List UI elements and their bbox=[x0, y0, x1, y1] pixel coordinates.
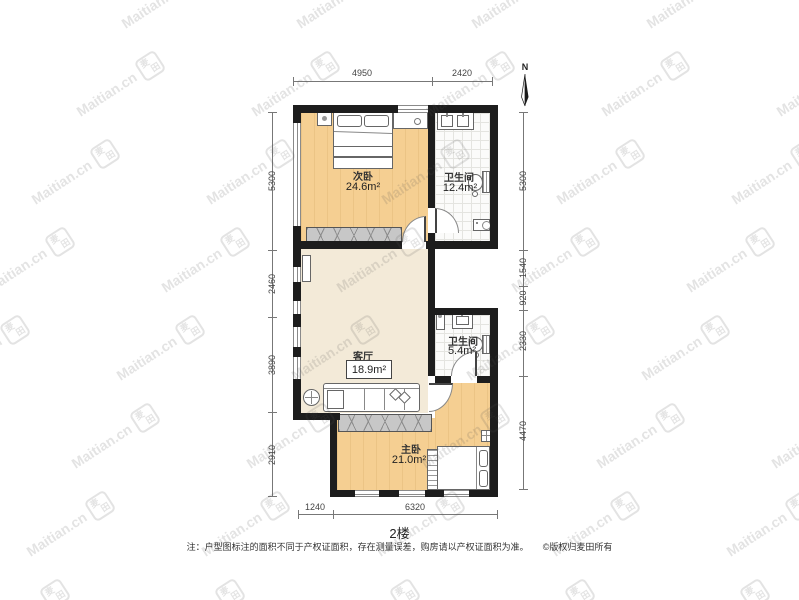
watermark: Maitian.cn麦田 bbox=[501, 577, 597, 600]
watermark: Maitian.cn麦田 bbox=[26, 137, 122, 211]
watermark: Maitian.cn麦田 bbox=[466, 0, 562, 35]
watermark: Maitian.cn麦田 bbox=[0, 577, 72, 600]
watermark: Maitian.cn麦田 bbox=[0, 0, 37, 35]
dim-label: 2460 bbox=[267, 254, 277, 314]
window bbox=[293, 301, 301, 314]
dim-line-top bbox=[293, 81, 493, 82]
room-area-master: 21.0m² bbox=[379, 454, 439, 466]
dim-tick bbox=[519, 376, 528, 377]
disclaimer-text: 注：户型图标注的面积不同于产权证面积，存在测量误差，购房请以产权证面积为准。 bbox=[187, 542, 529, 552]
dim-label: 2330 bbox=[518, 311, 528, 371]
plant-dot bbox=[322, 116, 327, 121]
watermark: Maitian.cn麦田 bbox=[681, 225, 777, 299]
table-cross-v bbox=[311, 391, 312, 404]
wall bbox=[426, 241, 428, 249]
room-area-bath-small: 5.4m² bbox=[432, 345, 492, 357]
window bbox=[293, 123, 301, 226]
dim-label: 2420 bbox=[432, 68, 492, 78]
watermark: Maitian.cn麦田 bbox=[291, 0, 387, 35]
dresser-icon bbox=[393, 111, 428, 129]
dim-label: 6320 bbox=[385, 502, 445, 512]
watermark: Maitian.cn麦田 bbox=[676, 577, 772, 600]
wall bbox=[301, 241, 402, 249]
washer-dot bbox=[476, 222, 478, 224]
dresser-knob bbox=[414, 118, 421, 125]
wall bbox=[293, 314, 301, 327]
north-label: N bbox=[517, 62, 533, 72]
window bbox=[398, 105, 428, 113]
watermark: Maitian.cn麦田 bbox=[551, 137, 647, 211]
wall bbox=[490, 105, 498, 249]
sink-inner bbox=[456, 316, 469, 325]
dim-line-bottom bbox=[298, 514, 497, 515]
wall bbox=[293, 347, 301, 357]
dim-label: 1240 bbox=[285, 502, 345, 512]
dim-tick bbox=[268, 250, 277, 251]
watermark: Maitian.cn麦田 bbox=[641, 0, 737, 35]
wall bbox=[293, 282, 301, 301]
room-area-bath-main: 12.4m² bbox=[430, 182, 490, 194]
bed-pillow bbox=[364, 115, 389, 127]
dim-label: 5300 bbox=[267, 151, 277, 211]
dim-tick bbox=[492, 77, 493, 86]
watermark: Maitian.cn麦田 bbox=[591, 401, 687, 475]
sofa-divider bbox=[364, 389, 365, 410]
watermark: Maitian.cn麦田 bbox=[156, 225, 252, 299]
dim-label: 2910 bbox=[267, 425, 277, 485]
bed-blanket bbox=[333, 146, 393, 157]
dim-tick bbox=[268, 317, 277, 318]
room-area-living-box: 18.9m² bbox=[346, 360, 392, 379]
watermark: Maitian.cn麦田 bbox=[111, 313, 207, 387]
sofa-divider bbox=[384, 389, 385, 410]
watermark: Maitian.cn麦田 bbox=[771, 49, 799, 123]
dim-tick bbox=[519, 489, 528, 490]
north-arrow-icon bbox=[518, 73, 532, 109]
watermark: Maitian.cn麦田 bbox=[151, 577, 247, 600]
dim-label: 4470 bbox=[518, 401, 528, 461]
dim-tick bbox=[293, 77, 294, 86]
dim-tick bbox=[268, 496, 277, 497]
watermark: Maitian.cn麦田 bbox=[326, 577, 422, 600]
bed-pillow bbox=[479, 450, 488, 467]
watermark: Maitian.cn麦田 bbox=[726, 137, 799, 211]
bed-pillow bbox=[479, 470, 488, 487]
wardrobe-icon bbox=[338, 414, 432, 432]
dim-tick bbox=[497, 510, 498, 519]
dim-tick bbox=[268, 412, 277, 413]
window bbox=[293, 267, 301, 282]
dim-label: 4950 bbox=[332, 68, 392, 78]
cabinet-icon bbox=[302, 255, 311, 282]
faucet-dot bbox=[462, 113, 464, 117]
wall bbox=[293, 105, 498, 113]
watermark: Maitian.cn麦田 bbox=[596, 49, 692, 123]
wall bbox=[293, 113, 301, 123]
dim-tick bbox=[519, 112, 528, 113]
floorplan-page: 次卧 24.6m² 卫生间 12.4m² 客厅 18.9m² 卫生间 5.4m²… bbox=[0, 0, 799, 600]
room-area-bedroom2: 24.6m² bbox=[333, 181, 393, 193]
dim-tick bbox=[432, 77, 433, 86]
sofa-chaise bbox=[327, 390, 344, 409]
watermark: Maitian.cn麦田 bbox=[116, 0, 212, 35]
wall bbox=[428, 233, 435, 241]
wall bbox=[293, 226, 301, 267]
faucet-dot bbox=[446, 113, 448, 117]
ac-line-v bbox=[486, 431, 487, 441]
copyright-text: ©版权归麦田所有 bbox=[543, 542, 613, 552]
watermark: Maitian.cn麦田 bbox=[201, 137, 297, 211]
wall bbox=[428, 241, 498, 249]
window bbox=[293, 327, 301, 347]
window bbox=[355, 490, 379, 497]
watermark: Maitian.cn麦田 bbox=[0, 225, 77, 299]
watermark: Maitian.cn麦田 bbox=[0, 313, 32, 387]
watermark: Maitian.cn麦田 bbox=[766, 401, 799, 475]
window bbox=[293, 357, 301, 379]
wall bbox=[293, 379, 301, 413]
wall bbox=[435, 376, 451, 383]
disclaimer-note: 注：户型图标注的面积不同于产权证面积，存在测量误差，购房请以产权证面积为准。©版… bbox=[0, 540, 799, 553]
wall bbox=[330, 413, 337, 497]
dim-label: 5300 bbox=[518, 151, 528, 211]
window bbox=[444, 490, 469, 497]
bed-headboard-line bbox=[476, 447, 477, 489]
wall bbox=[477, 376, 490, 383]
bed-pillow bbox=[337, 115, 362, 127]
watermark: Maitian.cn麦田 bbox=[66, 401, 162, 475]
window bbox=[399, 490, 425, 497]
wall bbox=[428, 308, 498, 315]
watermark: Maitian.cn麦田 bbox=[71, 49, 167, 123]
dim-label: 3890 bbox=[267, 335, 277, 395]
dim-tick bbox=[268, 112, 277, 113]
watermark: Maitian.cn麦田 bbox=[636, 313, 732, 387]
